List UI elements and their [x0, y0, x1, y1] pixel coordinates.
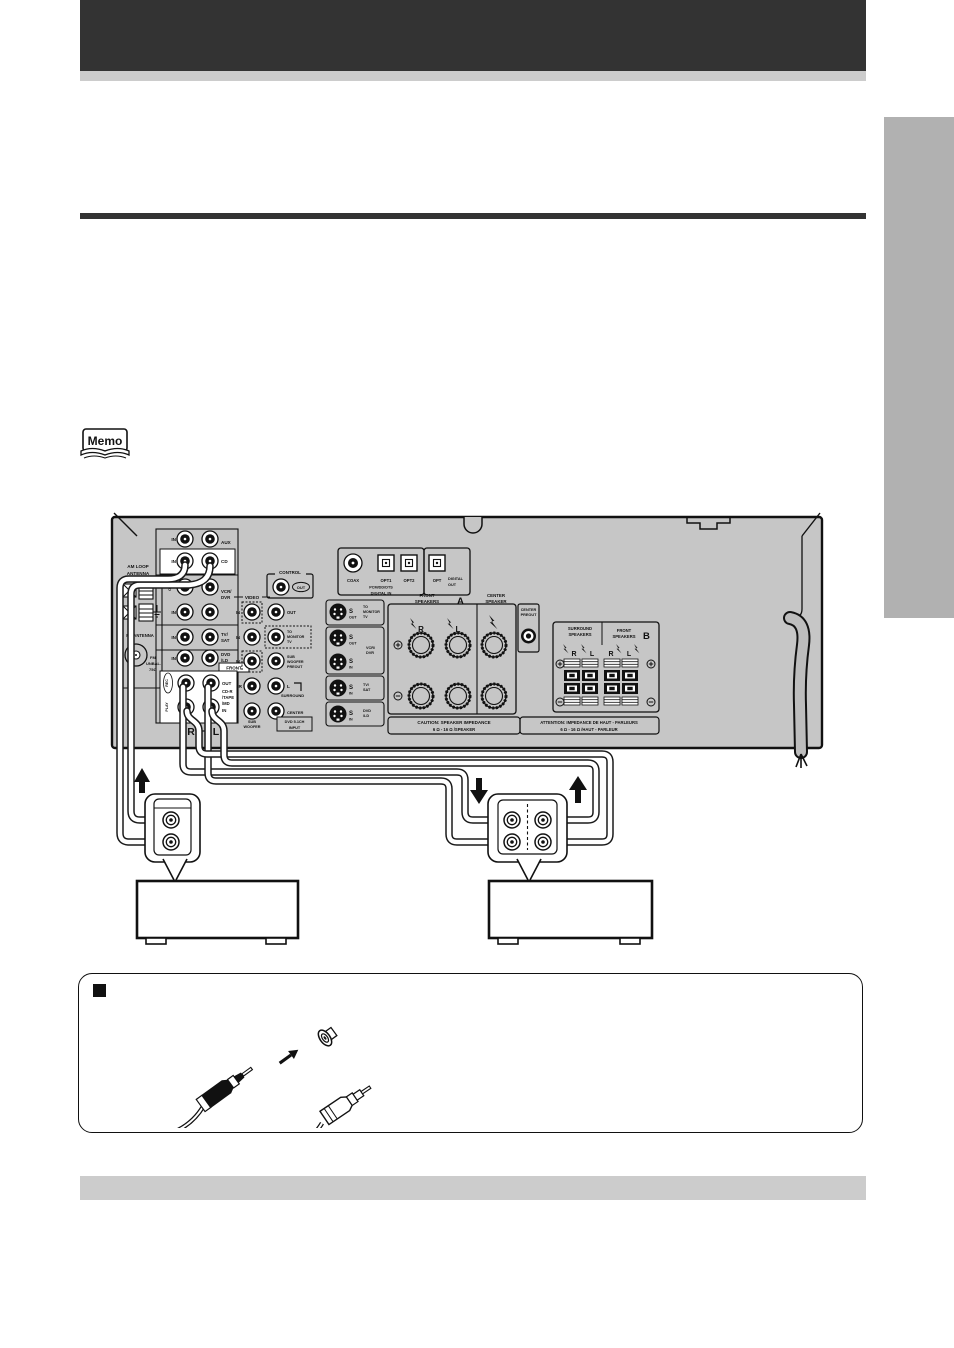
aux-jack-r[interactable]: [177, 531, 193, 547]
note-box: ■: [78, 973, 863, 1133]
black-rca-plug-icon: [167, 1062, 256, 1128]
s-label: S: [349, 685, 353, 691]
s-dvd-2: /LD: [363, 714, 369, 718]
memo-pages-line: [84, 456, 126, 458]
s-out-label-2: OUT: [349, 642, 357, 646]
mon-label-2: MONITOR: [287, 635, 305, 639]
section-title-rule: [80, 213, 866, 219]
s-tv-1: TV/: [363, 683, 370, 687]
s-out-label: OUT: [349, 616, 357, 620]
memo-badge: Memo: [78, 424, 134, 466]
video-dvd-in-label: IN: [236, 659, 240, 664]
front-tag-label: FRONT: [226, 666, 242, 671]
surround-sp-label-2: SPEAKERS: [568, 632, 591, 637]
tv-jack-r[interactable]: [177, 629, 193, 645]
mon-label-3: TV: [287, 640, 292, 644]
footer-bar: [80, 1176, 866, 1200]
surr-r-label: R: [571, 651, 576, 658]
opt-label: OPT: [433, 578, 442, 583]
tape-deck-in-jack-l[interactable]: [504, 834, 520, 850]
s-vcr-2: DVR: [366, 651, 374, 655]
opt1-jack[interactable]: [378, 555, 394, 571]
panel-notch-1: [464, 517, 482, 533]
front-sp-label-1: FRONT: [419, 593, 434, 598]
video-mon-jack[interactable]: [268, 629, 284, 645]
tape-label-1: CD-R: [222, 689, 232, 694]
center-sp-label-2: SPEAKER: [485, 599, 507, 604]
rca-plug-illustration: [129, 1008, 469, 1128]
tape-callout-pointer-fill: [517, 858, 541, 880]
sw-label-2: WOOFER: [243, 725, 260, 729]
s-in-label-3: IN: [349, 718, 353, 722]
cd-out-jack-l[interactable]: [163, 834, 179, 850]
cd-player-callout: [145, 794, 200, 880]
s-label: S: [349, 609, 353, 615]
b-l-label: L: [627, 651, 632, 658]
dvd51-label-1: DVD 5.1CH: [285, 720, 305, 724]
dvd-label-1: DVD: [221, 652, 230, 657]
tape-deck-out-jack-l[interactable]: [535, 834, 551, 850]
video-dvd-in-jack[interactable]: [244, 653, 260, 669]
binding-post-center-plus[interactable]: [482, 633, 506, 657]
tape-deck-in-jack-r[interactable]: [504, 812, 520, 828]
subwoofer-jack[interactable]: [244, 703, 260, 719]
surround-sp-label-1: SURROUND: [568, 626, 592, 631]
speakers-b-label: B: [643, 631, 650, 642]
tape-deck-foot-r: [620, 938, 640, 944]
aux-label: AUX: [221, 540, 232, 545]
am-loop-label-1: AM LOOP: [127, 564, 148, 569]
tape-in-label: IN: [222, 708, 226, 713]
vcr-label-2: DVR: [221, 595, 231, 600]
vcr-in-label: IN: [171, 610, 176, 615]
pcm-label: PCM/DD/DTS: [369, 586, 393, 590]
channel-l-label: L: [213, 726, 220, 738]
s-label: S: [349, 635, 353, 641]
channel-r-label: R: [187, 726, 195, 738]
s-in-label: IN: [349, 666, 353, 670]
video-vcr-in-jack[interactable]: [244, 604, 260, 620]
center-label: CENTER: [287, 710, 304, 715]
tv-jack-l[interactable]: [202, 629, 218, 645]
tape-label-3: /MD: [222, 701, 230, 706]
center-preout-jack[interactable]: [521, 629, 536, 644]
memo-label: Memo: [88, 434, 123, 448]
video-mon-in-jack[interactable]: [244, 629, 260, 645]
front-b-label-1: FRONT: [617, 628, 632, 633]
dvd-jack-r[interactable]: [177, 650, 193, 666]
tape-deck-out-jack-r[interactable]: [535, 812, 551, 828]
caution-line-1: CAUTION: SPEAKER IMPEDANCE: [417, 720, 490, 725]
aux-in-label: IN: [171, 537, 176, 542]
note-bullet-icon: ■: [93, 984, 106, 997]
memo-book-icon: Memo: [78, 424, 134, 466]
tv-in-label: IN: [171, 635, 176, 640]
video-vcr-out-jack[interactable]: [268, 604, 284, 620]
surround-label: SURROUND: [281, 693, 304, 698]
binding-post-l-minus[interactable]: [446, 684, 470, 708]
caution-line-2: 6 Ω - 16 Ω /SPEAKER: [433, 727, 475, 732]
video-vcr-in-label: IN: [236, 610, 240, 615]
front-b-label-2: SPEAKERS: [612, 634, 635, 639]
tape-out-label: OUT: [222, 681, 232, 686]
dvd-label-2: /LD: [221, 658, 228, 663]
svideo-in-tv-jack[interactable]: [330, 680, 347, 697]
signal-down-arrow-icon: [470, 778, 488, 804]
cd-player-foot-r: [266, 938, 286, 944]
surr-l-label: L: [590, 651, 595, 658]
svideo-out-monitor-jack[interactable]: [330, 604, 347, 621]
cd-label: CD: [221, 559, 228, 564]
dvd51-label-2: INPUT: [289, 726, 301, 730]
cd-player-foot-l: [146, 938, 166, 944]
center-preout-label-1: CENTER: [521, 608, 537, 612]
digital-out-label-2: OUT: [448, 583, 457, 587]
s-dvd-1: DVD: [363, 709, 371, 713]
vcr-in-jack-l[interactable]: [202, 604, 218, 620]
speakers-a-label: A: [457, 596, 464, 607]
s-vcr-1: VCR/: [366, 646, 376, 650]
insert-arrow-icon: [277, 1046, 301, 1068]
rca-socket-icon: [316, 1024, 340, 1048]
opt-out-jack[interactable]: [429, 555, 445, 571]
surround-r-jack[interactable]: [244, 678, 260, 694]
tape-deck-box: [489, 881, 652, 938]
control-out-label: OUT: [297, 585, 306, 590]
coax-label: COAX: [347, 578, 359, 583]
coax-jack[interactable]: [344, 554, 362, 572]
header-accent-strip: [80, 71, 866, 81]
s-in-label-2: IN: [349, 692, 353, 696]
cd-in-label: IN: [171, 559, 176, 564]
s-mon-1: TO: [363, 605, 368, 609]
tape-deck-foot-l: [498, 938, 518, 944]
tape-label-2: /TAPE: [222, 695, 234, 700]
tv-label-1: TV/: [221, 632, 229, 637]
sw-label-1: SUB: [248, 720, 256, 724]
opt1-label: OPT1: [381, 578, 393, 583]
control-jack[interactable]: [273, 579, 289, 595]
chapter-header-bar: [80, 0, 866, 71]
b-r-label: R: [608, 651, 613, 658]
digital-out-label-1: DIGITAL: [448, 577, 464, 581]
attention-line-1: ATTENTION: IMPEDANCE DE HAUT - PARLEURS: [540, 720, 638, 725]
vcr-in-jack-r[interactable]: [177, 604, 193, 620]
front-sp-label-2: SPEAKERS: [415, 599, 439, 604]
digital-in-label: DIGITAL IN: [371, 591, 392, 596]
s-label: S: [349, 659, 353, 665]
tv-label-2: SAT: [221, 638, 230, 643]
swp-label-3: PREOUT: [287, 665, 303, 669]
signal-up-arrow-left-icon: [134, 768, 150, 793]
binding-post-l-plus[interactable]: [446, 633, 470, 657]
video-label: VIDEO: [245, 595, 260, 600]
binding-post-r-minus[interactable]: [409, 684, 433, 708]
signal-up-arrow-right-icon: [569, 776, 587, 803]
center-sp-label-1: CENTER: [487, 593, 506, 598]
subwoofer-preout-jack[interactable]: [268, 653, 284, 669]
swp-label-1: SUB: [287, 655, 295, 659]
dvd-in-label: IN: [171, 656, 176, 661]
cd-player-box: [137, 881, 298, 938]
surround-l-jack[interactable]: [268, 678, 284, 694]
opt2-label: OPT2: [404, 578, 416, 583]
tape-deck-callout: [488, 794, 567, 880]
svideo-out-vcr-jack[interactable]: [330, 630, 347, 647]
surround-l-label: L: [287, 684, 290, 690]
fm-unbal-label: UNBAL.: [146, 661, 161, 666]
surround-r-label: R: [239, 684, 243, 690]
opt2-jack[interactable]: [401, 555, 417, 571]
manual-page: { "colors": { "header_bar": "#333333", "…: [0, 0, 954, 1348]
svideo-in-dvd-jack[interactable]: [330, 706, 347, 723]
white-rca-plug-icon: [285, 1081, 375, 1128]
rec-label: REC: [165, 679, 169, 687]
connection-diagram: AM LOOP ANTENNA FM ANTENNA FM UNBAL. 75: [0, 505, 954, 965]
s-label: S: [349, 711, 353, 717]
s-mon-3: TV: [363, 615, 368, 619]
play-label: PLAY: [165, 702, 169, 712]
svideo-in-vcr-jack[interactable]: [330, 654, 347, 671]
binding-post-r-plus[interactable]: [409, 633, 433, 657]
vcr-label-1: VCR/: [221, 589, 232, 594]
cd-callout-pointer-fill: [163, 858, 187, 880]
s-mon-2: MONITOR: [363, 610, 380, 614]
center-preout-label-2: PREOUT: [521, 613, 538, 617]
attention-line-2: 6 Ω - 16 Ω /HAUT - PARLEUR: [560, 727, 617, 732]
aux-jack-l[interactable]: [202, 531, 218, 547]
swp-label-2: WOOFER: [287, 660, 304, 664]
dvd-jack-l[interactable]: [202, 650, 218, 666]
video-vcr-out-label: OUT: [287, 610, 296, 615]
s-tv-2: SAT: [363, 688, 371, 692]
cd-out-jack-r[interactable]: [163, 812, 179, 828]
video-mon-in-label: IN: [236, 635, 240, 640]
mon-label-1: TO: [287, 630, 292, 634]
control-label: CONTROL: [279, 570, 301, 575]
binding-post-center-minus[interactable]: [482, 684, 506, 708]
